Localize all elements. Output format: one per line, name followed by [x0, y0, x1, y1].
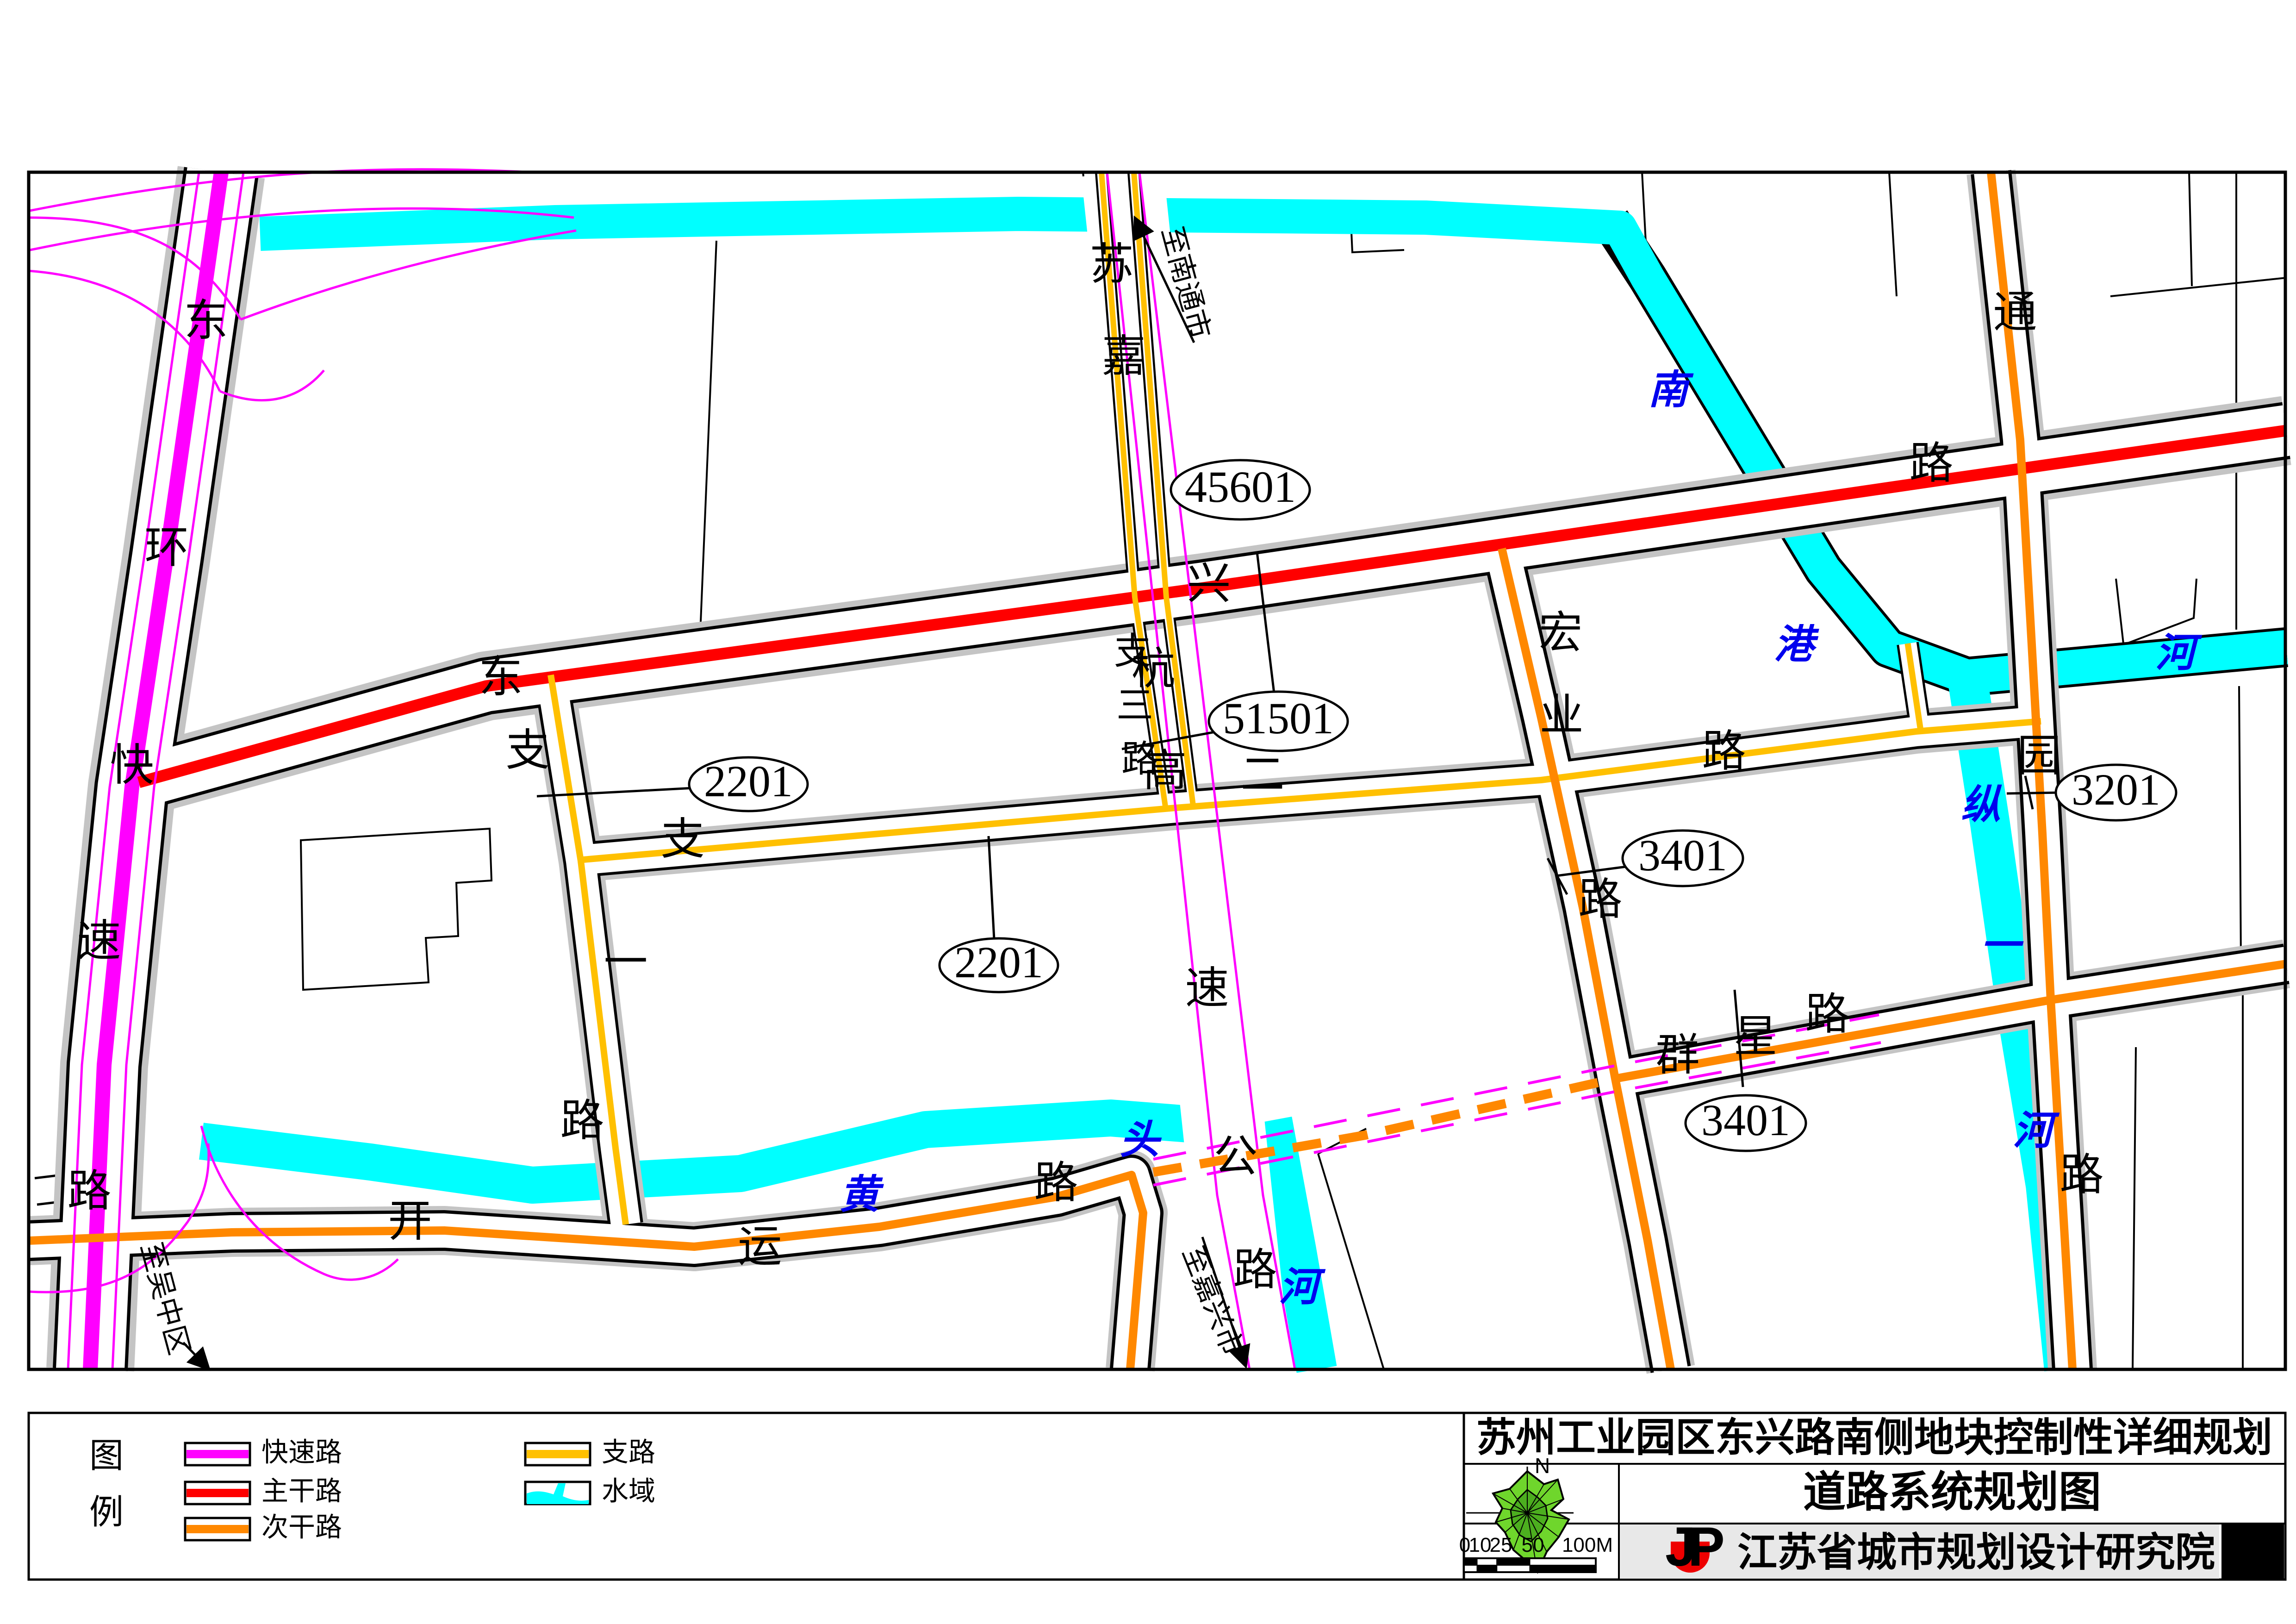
map-canvas: 东环快速路东兴路苏嘉杭高速公路支一路支二路支三路宏业路群星路通园路开运路南港河纵… [0, 0, 2296, 1624]
legend-item-arterial: 主干路 [185, 1476, 342, 1506]
water-label-39: 纵 [1961, 783, 2002, 827]
sheet-number: 05 [2225, 1521, 2281, 1578]
road-label-24: 宏 [1538, 608, 1582, 657]
road-label-29: 路 [1805, 990, 1849, 1039]
map-area: 东环快速路东兴路苏嘉杭高速公路支一路支二路支三路宏业路群星路通园路开运路南港河纵… [29, 169, 2286, 1369]
road-label-30: 通 [1993, 288, 2037, 337]
road-label-32: 路 [2060, 1150, 2103, 1199]
scalebar-seg-top-1 [1477, 1558, 1497, 1565]
road-label-33: 开 [388, 1197, 432, 1246]
code-value-5: 3401 [1701, 1095, 1790, 1145]
scalebar-seg-bottom-0 [1464, 1565, 1477, 1572]
scale-tick-25: 25 [1490, 1534, 1512, 1556]
road-label-15: 支 [505, 726, 549, 775]
road-label-13: 公 [1213, 1132, 1257, 1181]
institute-name: 江苏省城市规划设计研究院 [1737, 1530, 2215, 1575]
legend-label-arterial: 主干路 [261, 1476, 342, 1506]
road-label-26: 路 [1578, 875, 1622, 924]
road-label-8: 苏 [1089, 240, 1133, 289]
legend-label-expressway: 快速路 [261, 1437, 342, 1467]
legend-item-secondary: 次干路 [185, 1512, 342, 1542]
scale-tick-10: 10 [1469, 1534, 1492, 1556]
code-leader [2007, 793, 2060, 793]
road-label-7: 路 [1909, 439, 1953, 488]
road-label-14: 路 [1233, 1245, 1277, 1294]
scalebar-seg-bottom-1 [1477, 1565, 1497, 1572]
water-label-43: 头 [1120, 1118, 1162, 1162]
road-label-19: 二 [1240, 750, 1284, 799]
legend-label-water: 水域 [602, 1476, 655, 1506]
road-label-31: 园 [2017, 731, 2061, 781]
road-label-34: 运 [738, 1222, 782, 1271]
road-label-25: 业 [1539, 691, 1583, 740]
code-value-3: 2201 [954, 937, 1043, 987]
road-label-35: 路 [1034, 1158, 1078, 1207]
scalebar-seg-top-3 [1530, 1558, 1596, 1565]
legend-heading-char-2: 例 [89, 1493, 124, 1531]
road-label-17: 路 [560, 1096, 604, 1145]
drawing-title: 道路系统规划图 [1803, 1468, 2101, 1516]
code-leader [989, 836, 994, 939]
code-value-2: 2201 [704, 756, 793, 806]
qunxing-road-solid [1615, 964, 2286, 1079]
road-label-27: 群 [1655, 1031, 1699, 1080]
road-label-21: 支 [1114, 631, 1151, 672]
logo-text: JP [1665, 1516, 1723, 1578]
road-label-2: 快 [110, 741, 154, 790]
road-label-3: 速 [77, 917, 121, 966]
code-value-6: 3201 [2072, 765, 2160, 814]
institute-logo: JP [1665, 1516, 1723, 1578]
legend-item-expressway: 快速路 [185, 1437, 342, 1467]
scalebar-seg-bottom-3 [1530, 1565, 1596, 1572]
road-label-18: 支 [660, 815, 704, 864]
road-label-6: 兴 [1187, 559, 1231, 608]
road-label-5: 东 [479, 653, 523, 702]
scalebar-seg-bottom-2 [1497, 1565, 1530, 1572]
legend: 图 例 快速路 主干路 次干路 [89, 1437, 655, 1543]
bottom-band: 图 例 快速路 主干路 次干路 [29, 1413, 2285, 1580]
scale-tick-50: 50 [1522, 1534, 1544, 1556]
plan-sheet: 东环快速路东兴路苏嘉杭高速公路支一路支二路支三路宏业路群星路通园路开运路南港河纵… [0, 0, 2296, 1624]
road-label-4: 路 [67, 1167, 111, 1216]
road-label-16: 一 [604, 937, 647, 987]
scale-tick-100: 100M [1562, 1534, 1613, 1556]
legend-item-water: 水域 [525, 1476, 655, 1506]
scalebar-seg-top-0 [1464, 1558, 1477, 1565]
road-label-1: 环 [144, 523, 188, 572]
legend-item-branch: 支路 [525, 1437, 655, 1467]
code-value-0: 45601 [1185, 462, 1296, 512]
water-label-40: 一 [1980, 924, 2024, 968]
title-block: 苏州工业园区东兴路南侧地块控制性详细规划 道路系统规划图 N [1459, 1413, 2285, 1580]
legend-label-secondary: 次干路 [261, 1512, 342, 1542]
road-label-0: 东 [184, 296, 228, 345]
project-title: 苏州工业园区东兴路南侧地块控制性详细规划 [1476, 1416, 2272, 1460]
legend-label-branch: 支路 [602, 1437, 655, 1467]
road-label-20: 路 [1702, 727, 1746, 776]
road-label-9: 嘉 [1101, 332, 1145, 381]
water-label-42: 黄 [840, 1173, 884, 1217]
water-label-36: 南 [1648, 368, 1694, 412]
code-value-1: 51501 [1223, 693, 1334, 743]
road-label-12: 速 [1185, 964, 1229, 1013]
water-label-37: 港 [1774, 623, 1819, 667]
code-value-4: 3401 [1638, 831, 1727, 880]
legend-heading-char-1: 图 [89, 1437, 124, 1475]
compass-north-label: N [1535, 1454, 1550, 1478]
road-label-22: 三 [1116, 685, 1153, 726]
scalebar-seg-top-2 [1497, 1558, 1530, 1565]
scale-bar: 0 10 25 50 100M [1459, 1534, 1613, 1572]
